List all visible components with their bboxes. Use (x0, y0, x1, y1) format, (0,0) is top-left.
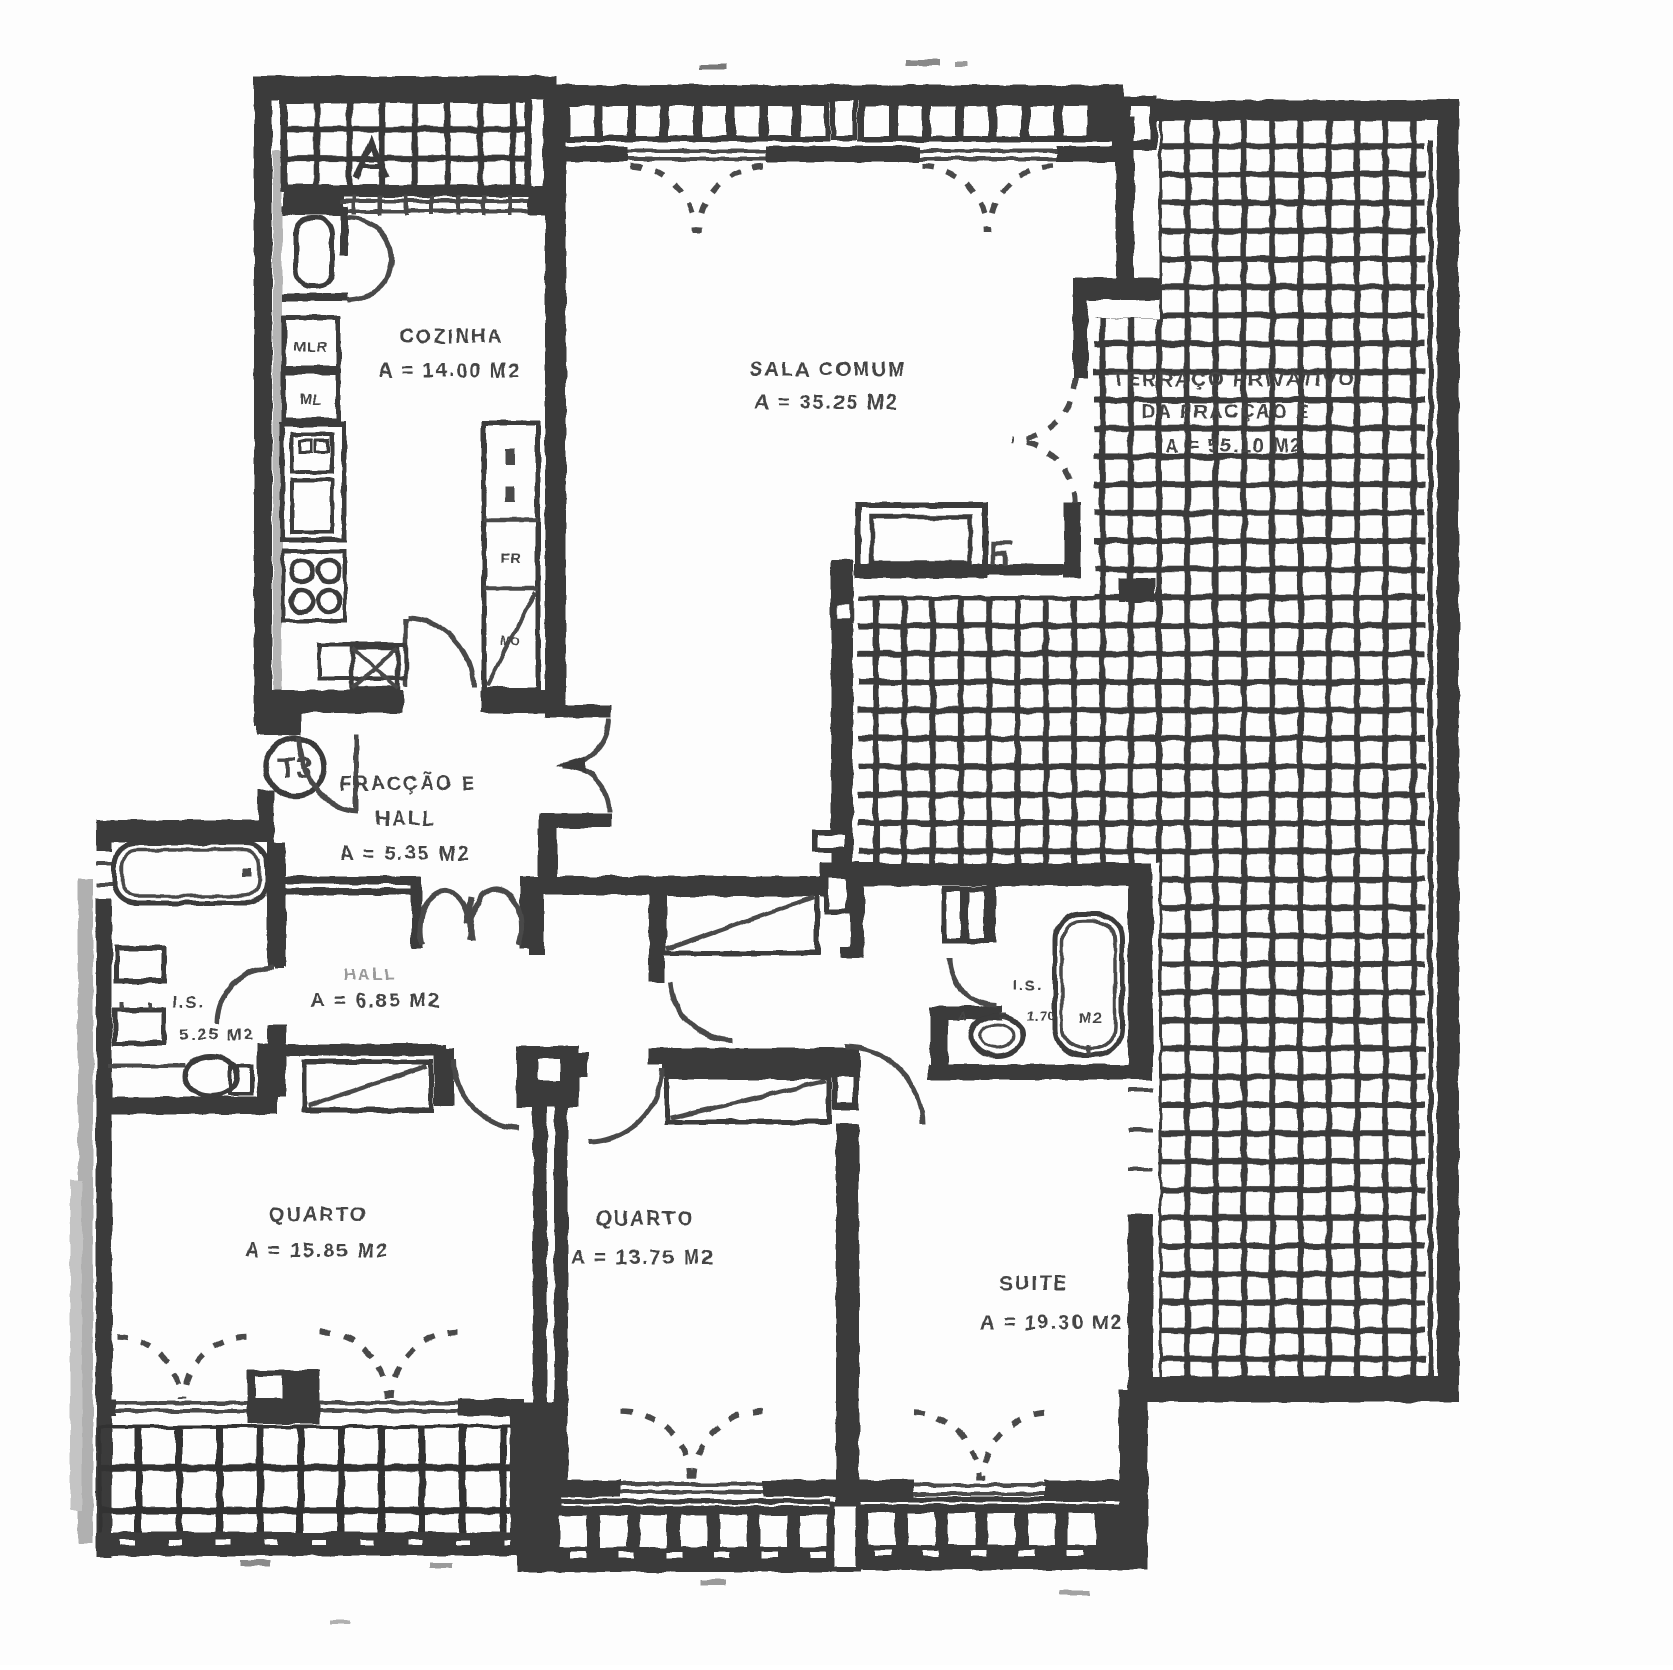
svg-text:I.S.: I.S. (172, 993, 206, 1012)
svg-text:M2: M2 (1079, 1010, 1104, 1027)
svg-text:FR: FR (501, 550, 522, 567)
svg-text:5.25 M2: 5.25 M2 (179, 1025, 254, 1044)
svg-text:A = 35.25 M2: A = 35.25 M2 (755, 392, 899, 414)
svg-text:A = 14.00 M2: A = 14.00 M2 (378, 360, 522, 382)
svg-text:A = 15.85 M2: A = 15.85 M2 (245, 1240, 389, 1262)
svg-text:ML: ML (300, 391, 323, 408)
svg-text:QUARTO: QUARTO (596, 1208, 694, 1230)
svg-text:HALL: HALL (343, 965, 396, 984)
svg-text:HALL: HALL (375, 808, 436, 830)
svg-text:=: = (999, 1008, 1007, 1024)
svg-text:MLR: MLR (294, 339, 328, 356)
svg-text:FRACÇÃO E: FRACÇÃO E (340, 772, 477, 795)
svg-text:COZINHA: COZINHA (399, 326, 504, 348)
svg-text:MO: MO (501, 634, 521, 648)
svg-text:I.S.: I.S. (1013, 977, 1044, 994)
svg-text:DA FRACÇÃO E: DA FRACÇÃO E (1142, 401, 1311, 423)
svg-text:A = 55.10 M2: A = 55.10 M2 (1165, 436, 1303, 457)
svg-text:1.70: 1.70 (1026, 1008, 1055, 1024)
svg-text:A = 5.35 M2: A = 5.35 M2 (340, 843, 471, 865)
svg-text:A = 19.30 M2: A = 19.30 M2 (980, 1312, 1124, 1334)
svg-text:A = 6.85 M2: A = 6.85 M2 (311, 990, 442, 1012)
svg-text:SUITE: SUITE (1000, 1273, 1069, 1295)
svg-text:TERRAÇO PRIVATIVO: TERRAÇO PRIVATIVO (1112, 369, 1355, 391)
svg-text:QUARTO: QUARTO (269, 1204, 367, 1226)
svg-text:A: A (957, 1008, 967, 1024)
svg-text:SALA COMUM: SALA COMUM (749, 359, 906, 381)
svg-text:A = 13.75 M2: A = 13.75 M2 (571, 1247, 715, 1269)
